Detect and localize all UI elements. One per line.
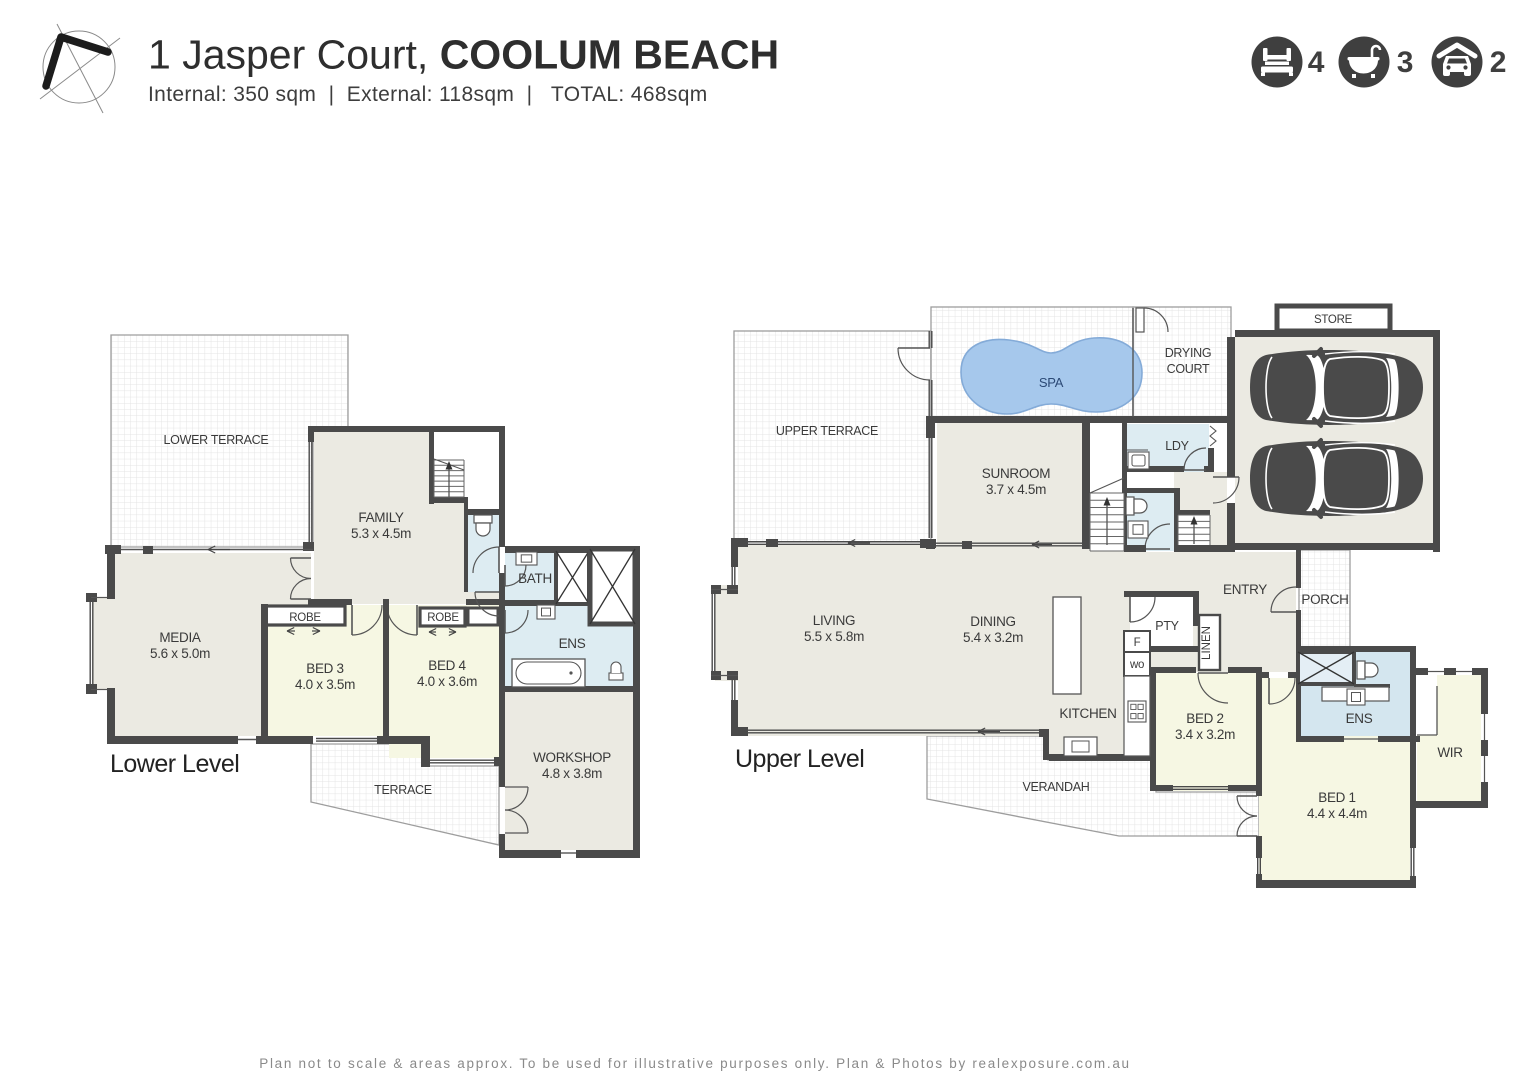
svg-text:4.0 x 3.5m: 4.0 x 3.5m xyxy=(295,677,355,692)
svg-text:ENTRY: ENTRY xyxy=(1223,582,1267,597)
svg-text:4.0 x 3.6m: 4.0 x 3.6m xyxy=(417,674,477,689)
svg-text:VERANDAH: VERANDAH xyxy=(1022,780,1089,794)
svg-text:4: 4 xyxy=(1308,46,1325,79)
svg-text:SPA: SPA xyxy=(1039,375,1064,390)
svg-text:Internal: 350 sqm | External: Internal: 350 sqm | External: 118sqm | T… xyxy=(148,83,708,106)
svg-text:LOWER TERRACE: LOWER TERRACE xyxy=(164,433,269,447)
svg-text:DRYING: DRYING xyxy=(1165,346,1212,360)
svg-text:1 Jasper Court, COOLUM BEACH: 1 Jasper Court, COOLUM BEACH xyxy=(148,32,779,78)
svg-text:2: 2 xyxy=(1490,46,1506,79)
svg-text:LIVING: LIVING xyxy=(813,613,855,628)
svg-text:STORE: STORE xyxy=(1314,314,1353,326)
svg-text:Upper Level: Upper Level xyxy=(735,745,864,773)
svg-text:5.5 x 5.8m: 5.5 x 5.8m xyxy=(804,629,864,644)
svg-text:FAMILY: FAMILY xyxy=(358,510,404,525)
svg-text:5.4 x 3.2m: 5.4 x 3.2m xyxy=(963,630,1023,645)
svg-text:F: F xyxy=(1134,637,1141,649)
svg-text:DINING: DINING xyxy=(970,614,1015,629)
svg-text:WIR: WIR xyxy=(1437,745,1463,760)
svg-text:PORCH: PORCH xyxy=(1301,592,1348,607)
svg-text:PTY: PTY xyxy=(1155,619,1179,633)
svg-text:MEDIA: MEDIA xyxy=(159,630,201,645)
svg-text:ENS: ENS xyxy=(1346,711,1373,726)
svg-text:3.7 x 4.5m: 3.7 x 4.5m xyxy=(986,482,1046,497)
svg-text:BED 4: BED 4 xyxy=(428,658,466,673)
svg-text:LDY: LDY xyxy=(1165,439,1189,453)
svg-text:5.6 x 5.0m: 5.6 x 5.0m xyxy=(150,646,210,661)
svg-text:wo: wo xyxy=(1129,659,1144,671)
svg-text:KITCHEN: KITCHEN xyxy=(1059,706,1116,721)
svg-text:ENS: ENS xyxy=(559,636,586,651)
svg-text:ROBE: ROBE xyxy=(289,612,321,624)
svg-text:COURT: COURT xyxy=(1167,362,1210,376)
svg-text:LINEN: LINEN xyxy=(1201,626,1213,660)
svg-text:WORKSHOP: WORKSHOP xyxy=(533,750,611,765)
svg-text:3.4 x 3.2m: 3.4 x 3.2m xyxy=(1175,727,1235,742)
svg-text:5.3 x 4.5m: 5.3 x 4.5m xyxy=(351,526,411,541)
svg-text:3: 3 xyxy=(1397,46,1413,79)
svg-text:4.8 x 3.8m: 4.8 x 3.8m xyxy=(542,766,602,781)
svg-text:Plan not to scale & areas appr: Plan not to scale & areas approx. To be … xyxy=(259,1056,1130,1071)
svg-text:ROBE: ROBE xyxy=(427,612,459,624)
svg-text:Lower Level: Lower Level xyxy=(110,750,239,778)
svg-text:4.4 x 4.4m: 4.4 x 4.4m xyxy=(1307,806,1367,821)
svg-text:BATH: BATH xyxy=(518,571,552,586)
svg-text:BED 1: BED 1 xyxy=(1318,790,1356,805)
svg-text:TERRACE: TERRACE xyxy=(374,783,432,797)
svg-text:BED 2: BED 2 xyxy=(1186,711,1224,726)
svg-text:BED 3: BED 3 xyxy=(306,661,344,676)
svg-text:SUNROOM: SUNROOM xyxy=(982,466,1050,481)
svg-text:UPPER TERRACE: UPPER TERRACE xyxy=(776,424,878,438)
